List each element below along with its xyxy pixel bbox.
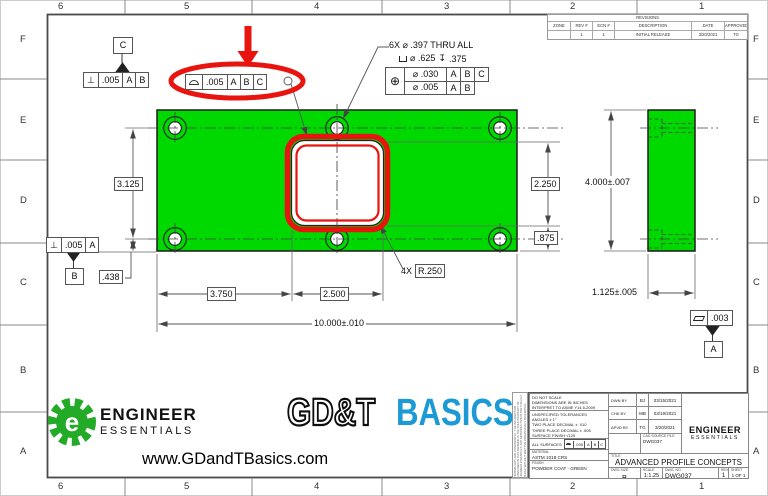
approved-by-date: 3/20/2021 [648, 419, 682, 434]
finish-cell: FINISH POWDER COAT - GREEN [529, 460, 609, 479]
zone-bottom: 6 [58, 481, 63, 492]
rev-approved: TG [724, 31, 747, 39]
rev-header-date: DATE [691, 22, 724, 30]
zone-top: 5 [184, 1, 189, 12]
hole-note: 6X ⌀ .397 THRU ALL [389, 40, 473, 51]
datum-ref: C [474, 67, 489, 82]
rev-header-rev: REV # [570, 22, 592, 30]
tolerance-value: .005 [202, 75, 227, 89]
title-block: DO NOT SCALE DIMENSIONS ARE IN INCHES IN… [528, 392, 748, 478]
dim-cutout-width: 2.500 [320, 287, 349, 301]
cad-file-value: DWG037 [641, 439, 681, 445]
perpendicularity-symbol: ⊥ [47, 238, 61, 252]
drawing-title: ADVANCED PROFILE CONCEPTS [609, 458, 748, 467]
all-around-symbol [284, 77, 292, 85]
dim-cutout-height: 2.250 [531, 177, 560, 191]
tolerance-value: .003 [707, 311, 732, 325]
zone-top: 3 [444, 1, 449, 12]
sheet-cell: SHEET 1 OF 1 [728, 467, 749, 479]
checked-by-date: 03/19/2021 [648, 406, 682, 420]
zone-top: 6 [58, 1, 63, 12]
zone-right: D [753, 195, 760, 206]
dim-overall-height: 4.000±.007 [583, 176, 632, 188]
brand-gdt: GD&T [287, 393, 375, 433]
counterbore-diameter: ⌀ .625 [410, 53, 435, 64]
dim-overall-width: 10.000±.010 [312, 317, 366, 329]
rev-description: INITIAL RELEASE [614, 31, 691, 39]
zone-bottom: 2 [570, 481, 575, 492]
rev-header-description: DESCRIPTION [614, 22, 691, 30]
rev-zone [548, 31, 570, 39]
gear-logo-large: e [53, 403, 91, 441]
cad-source-cell: CAD SOURCE FILE DWG037 [640, 433, 682, 454]
flatness-symbol [691, 311, 707, 325]
scale-value: 1:1.25 [641, 473, 662, 479]
zone-top: 1 [699, 1, 704, 12]
profile-fcf: .005 A B C [185, 74, 267, 90]
datum-c-flag: C [113, 37, 133, 54]
corner-qty: 4X [401, 266, 412, 276]
datum-ref: B [460, 67, 475, 82]
rev-header-zone: ZONE [548, 22, 570, 30]
tolerance-value: ⌀ .030 [404, 67, 447, 82]
fine-print-strip: PROPRIETARY AND CONFIDENTIAL: THE INFORM… [512, 392, 528, 478]
brand-essentials: ESSENTIALS [682, 435, 748, 441]
approved-by-label: APVD BY [608, 419, 637, 434]
zone-left: F [20, 34, 26, 45]
datum-a-flag: A [704, 341, 723, 358]
dwgno-value: DWG037 [663, 473, 718, 479]
zone-right: F [753, 34, 759, 45]
all-surfaces-fcf: .030 A B C [564, 439, 606, 449]
revisions-header-row: ZONE REV # ECN # DESCRIPTION DATE APPROV… [548, 21, 747, 30]
zone-right: A [753, 446, 759, 457]
size-cell: DWG SIZE B [608, 467, 641, 479]
profile-of-surface-symbol [565, 443, 573, 446]
tolerance-value: .005 [61, 238, 86, 252]
position-symbol: ⊕ [385, 67, 405, 95]
zone-bottom: 1 [699, 481, 704, 492]
projection-cell [608, 433, 641, 454]
dwgno-cell: DWG. NO. DWG037 [662, 467, 719, 479]
logo-cell: ENGINEER ESSENTIALS [681, 393, 749, 454]
zone-top: 4 [314, 1, 319, 12]
corner-radius-value: R.250 [415, 264, 445, 278]
datum-ref: A [227, 75, 240, 89]
dim-left-to-cutout: 3.750 [207, 287, 236, 301]
zone-right: C [753, 277, 760, 288]
rev-number: 1 [570, 31, 592, 39]
dim-row-spacing: 3.125 [114, 177, 143, 191]
dim-cutout-to-edge: .875 [534, 231, 558, 245]
revisions-table: REVISIONS ZONE REV # ECN # DESCRIPTION D… [547, 14, 748, 40]
drawing-sheet: e e 6 5 4 3 2 1 6 5 4 3 2 1 F E D C B A … [0, 0, 768, 496]
fine-print-text: PROPRIETARY AND CONFIDENTIAL: THE INFORM… [513, 393, 528, 478]
square-cutout [292, 141, 384, 226]
dim-edge-to-hole: .438 [99, 270, 123, 284]
zone-top: 2 [570, 1, 575, 12]
position-fcf: ⊕ ⌀ .030 A B C ⌀ .005 A B [385, 67, 493, 95]
datum-ref: A [85, 238, 98, 252]
datum-ref: A [446, 81, 461, 96]
drawn-by-date: 03/15/2021 [648, 393, 682, 407]
datum-ref: B [135, 73, 148, 87]
brand-basics: BASICS [396, 393, 514, 433]
counterbore-depth: .375 [449, 54, 467, 64]
general-notes: DO NOT SCALE DIMENSIONS ARE IN INCHES IN… [529, 393, 609, 411]
zone-left: E [20, 115, 26, 126]
zone-right: E [753, 115, 759, 126]
profile-of-surface-symbol [186, 75, 202, 89]
datum-ref: A [122, 73, 135, 87]
website-url: www.GDandTBasics.com [142, 450, 328, 469]
gear-letter: e [65, 407, 79, 437]
depth-icon: ↧ [438, 53, 446, 64]
rev-value: 1 [719, 473, 728, 479]
title-cell: TITLE ADVANCED PROFILE CONCEPTS [608, 453, 749, 468]
datum-ref: B [240, 75, 253, 89]
zone-left: D [20, 195, 27, 206]
perpendicularity-symbol: ⊥ [84, 73, 98, 87]
perpendicularity-fcf-top: ⊥ .005 A B [83, 72, 149, 88]
flatness-fcf: .003 [690, 310, 733, 326]
rev-date: 3/20/2021 [691, 31, 724, 39]
red-arrow-icon [238, 26, 259, 67]
datum-ref: C [253, 75, 267, 89]
counterbore-icon [399, 56, 407, 62]
rev-header-approved: APPROVED [724, 22, 747, 30]
zone-left: B [20, 365, 26, 376]
scale-cell: SCALE 1:1.25 [640, 467, 663, 479]
brand-engineer: ENGINEER [682, 425, 748, 435]
finish-value: POWDER COAT - GREEN [530, 466, 608, 472]
dim-thickness: 1.125±.005 [590, 286, 639, 298]
checked-by-label: CHK BY [608, 406, 637, 420]
drawn-by-label: DWN BY [608, 393, 637, 407]
zone-bottom: 3 [444, 481, 449, 492]
zone-left: A [20, 446, 26, 457]
zone-bottom: 5 [184, 481, 189, 492]
datum-ref: A [446, 67, 461, 82]
rev-header-ecn: ECN # [592, 22, 614, 30]
tolerance-value: ⌀ .005 [404, 81, 447, 96]
datum-ref: B [460, 81, 475, 96]
datum-b-flag: B [65, 268, 84, 285]
revisions-data-row: 1 1 INITIAL RELEASE 3/20/2021 TG [548, 30, 747, 39]
size-value: B [609, 473, 640, 479]
brand-essentials: ESSENTIALS [100, 425, 194, 437]
tolerance-value: .005 [98, 73, 123, 87]
zone-bottom: 4 [314, 481, 319, 492]
zone-left: C [20, 277, 27, 288]
dim-corner-radius: 4X R.250 [401, 264, 445, 278]
zone-right: B [753, 365, 759, 376]
brand-engineer: ENGINEER [100, 405, 197, 425]
counterbore-note: ⌀ .625 ↧ .375 [399, 53, 467, 64]
perpendicularity-fcf-bottom: ⊥ .005 A [46, 237, 99, 253]
rev-ecn: 1 [592, 31, 614, 39]
tolerance-notes: UNSPECIFIED TOLERANCES ANGLES ± 1° TWO P… [529, 410, 609, 439]
sheet-value: 1 OF 1 [729, 473, 748, 478]
